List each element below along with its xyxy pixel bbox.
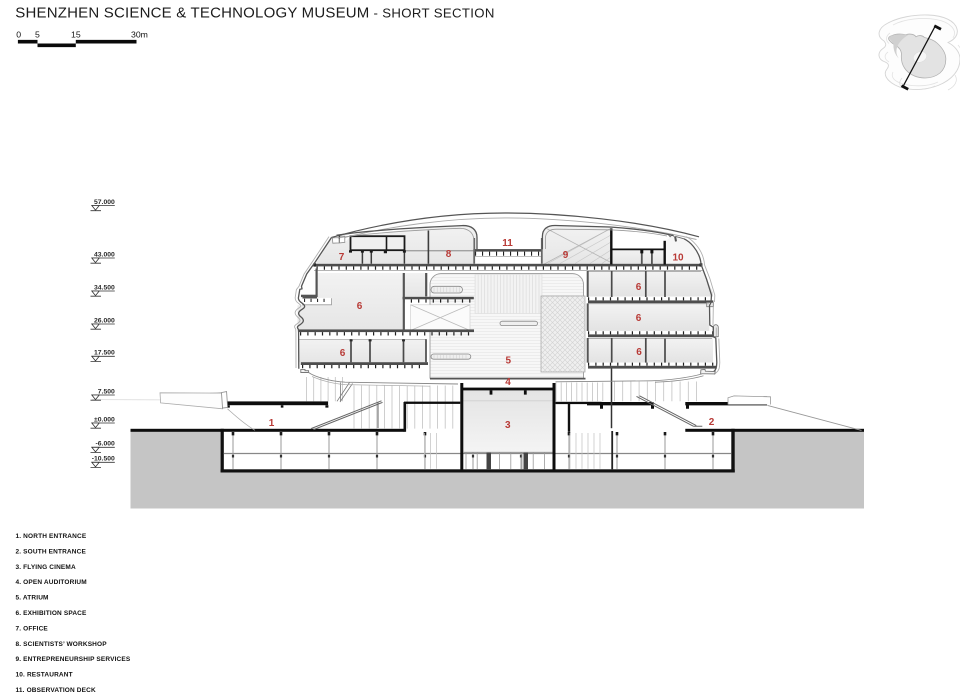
svg-text:7.500: 7.500 (98, 388, 115, 395)
svg-text:6: 6 (636, 347, 642, 358)
svg-text:10: 10 (672, 252, 684, 263)
svg-text:11. OBSERVATION DECK: 11. OBSERVATION DECK (16, 687, 96, 694)
svg-text:11: 11 (502, 238, 513, 249)
svg-text:8: 8 (446, 249, 452, 260)
svg-text:30m: 30m (131, 30, 148, 40)
svg-text:0: 0 (16, 30, 21, 40)
svg-text:6: 6 (340, 348, 346, 359)
svg-text:1: 1 (269, 418, 275, 429)
svg-text:3. FLYING CINEMA: 3. FLYING CINEMA (16, 564, 76, 571)
svg-text:15: 15 (71, 30, 81, 40)
svg-text:5: 5 (506, 355, 512, 366)
svg-text:3: 3 (505, 420, 511, 431)
svg-text:1. NORTH ENTRANCE: 1. NORTH ENTRANCE (16, 533, 87, 540)
svg-text:2. SOUTH ENTRANCE: 2. SOUTH ENTRANCE (16, 548, 87, 555)
svg-text:57.000: 57.000 (94, 199, 115, 206)
svg-text:6: 6 (636, 313, 642, 324)
svg-text:4. OPEN AUDITORIUM: 4. OPEN AUDITORIUM (16, 579, 87, 586)
svg-text:6: 6 (357, 301, 363, 312)
svg-text:2: 2 (709, 417, 715, 428)
svg-text:5. ATRIUM: 5. ATRIUM (16, 595, 49, 602)
svg-text:9. ENTREPRENEURSHIP SERVICES: 9. ENTREPRENEURSHIP SERVICES (16, 656, 131, 663)
svg-text:6. EXHIBITION SPACE: 6. EXHIBITION SPACE (16, 610, 88, 617)
svg-text:7. OFFICE: 7. OFFICE (16, 625, 49, 632)
svg-text:7: 7 (339, 252, 345, 263)
svg-text:34.500: 34.500 (94, 284, 115, 291)
svg-text:17.500: 17.500 (94, 350, 115, 357)
svg-text:8. SCIENTISTS’ WORKSHOP: 8. SCIENTISTS’ WORKSHOP (16, 641, 108, 648)
svg-text:26.000: 26.000 (94, 317, 115, 324)
svg-text:9: 9 (563, 250, 569, 261)
svg-text:-10.500: -10.500 (92, 456, 115, 463)
svg-text:43.000: 43.000 (94, 251, 115, 258)
svg-text:4: 4 (505, 377, 511, 388)
svg-text:±0.000: ±0.000 (94, 416, 115, 423)
svg-text:-6.000: -6.000 (96, 441, 115, 448)
svg-text:6: 6 (636, 282, 642, 293)
svg-text:5: 5 (35, 30, 40, 40)
svg-text:SHENZHEN SCIENCE & TECHNOLOGY: SHENZHEN SCIENCE & TECHNOLOGY MUSEUM - S… (15, 5, 494, 22)
svg-text:10. RESTAURANT: 10. RESTAURANT (16, 672, 73, 679)
